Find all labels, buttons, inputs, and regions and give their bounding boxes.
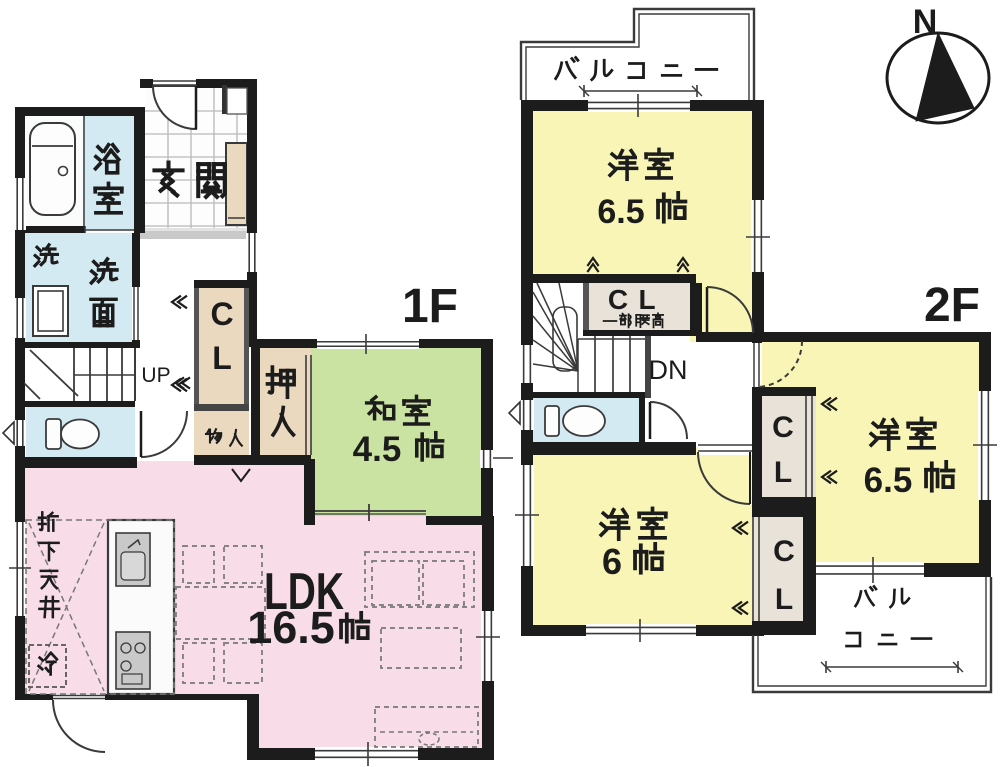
svg-text:L: L <box>775 583 793 616</box>
svg-text:L: L <box>774 456 792 489</box>
svg-text:C: C <box>608 284 628 315</box>
svg-text:2F: 2F <box>924 279 980 332</box>
svg-text:6.5: 6.5 <box>864 461 913 500</box>
svg-text:1F: 1F <box>402 280 458 333</box>
svg-text:6: 6 <box>602 541 622 582</box>
svg-text:16.5: 16.5 <box>247 602 335 653</box>
svg-text:4.5: 4.5 <box>353 430 402 469</box>
svg-text:UP: UP <box>141 364 170 387</box>
svg-text:C: C <box>773 535 795 568</box>
svg-text:C: C <box>210 296 233 332</box>
svg-text:C: C <box>772 411 794 444</box>
svg-text:N: N <box>913 3 938 41</box>
svg-text:L: L <box>638 284 655 315</box>
svg-text:L: L <box>212 340 232 376</box>
svg-text:6.5: 6.5 <box>597 193 644 231</box>
svg-text:DN: DN <box>649 355 688 385</box>
